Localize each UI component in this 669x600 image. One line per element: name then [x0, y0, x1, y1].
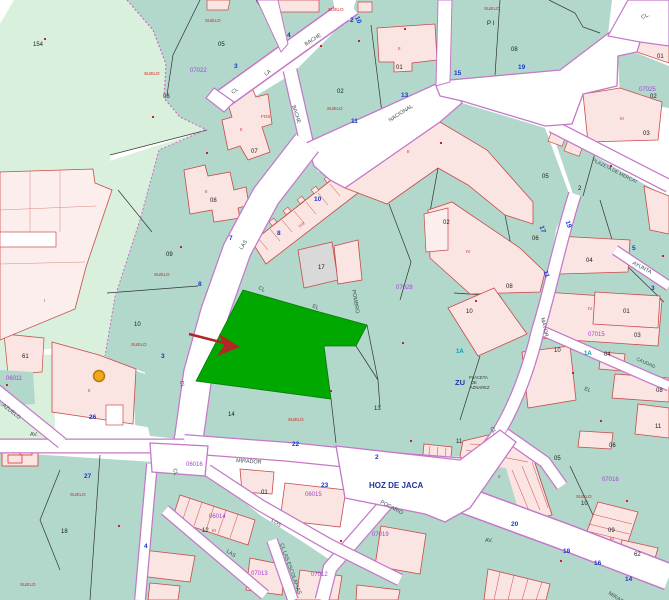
svg-text:FOS: FOS — [261, 114, 270, 119]
svg-text:II: II — [88, 388, 91, 393]
svg-text:8: 8 — [198, 281, 202, 288]
svg-text:23: 23 — [321, 482, 329, 489]
svg-text:II: II — [498, 474, 501, 479]
svg-text:13: 13 — [401, 92, 409, 99]
svg-text:SUELO: SUELO — [327, 106, 343, 111]
svg-text:CL: CL — [178, 380, 185, 388]
svg-text:06: 06 — [609, 443, 616, 449]
svg-text:07028: 07028 — [396, 285, 413, 291]
svg-text:61: 61 — [22, 354, 29, 360]
svg-text:11: 11 — [456, 439, 463, 445]
svg-text:01: 01 — [261, 490, 268, 496]
svg-text:III: III — [212, 528, 216, 533]
svg-text:12: 12 — [202, 528, 209, 534]
svg-text:AZNAREZ: AZNAREZ — [470, 385, 490, 390]
svg-text:07019: 07019 — [372, 532, 389, 538]
svg-text:10: 10 — [314, 196, 322, 203]
svg-text:18: 18 — [61, 529, 68, 535]
svg-text:SUELO: SUELO — [131, 342, 147, 347]
svg-text:05: 05 — [554, 456, 561, 462]
svg-text:09: 09 — [166, 252, 173, 258]
svg-text:13: 13 — [374, 406, 381, 412]
svg-text:SUELO: SUELO — [20, 582, 36, 587]
svg-text:3: 3 — [234, 63, 238, 70]
svg-text:10: 10 — [554, 348, 561, 354]
svg-text:07012: 07012 — [311, 572, 328, 578]
svg-text:10: 10 — [466, 309, 473, 315]
svg-text:02: 02 — [337, 89, 344, 95]
svg-text:AV.: AV. — [30, 432, 38, 438]
svg-text:08: 08 — [210, 198, 217, 204]
svg-text:05: 05 — [542, 174, 549, 180]
svg-text:8: 8 — [277, 230, 281, 237]
svg-text:I: I — [44, 298, 45, 303]
svg-text:06014: 06014 — [209, 514, 226, 520]
svg-text:11: 11 — [351, 118, 358, 125]
svg-text:06011: 06011 — [6, 376, 23, 382]
svg-text:03: 03 — [634, 333, 641, 339]
svg-text:SUELO: SUELO — [484, 6, 500, 11]
svg-text:07013: 07013 — [251, 571, 268, 577]
svg-text:SUELO: SUELO — [154, 272, 170, 277]
svg-text:SUELO: SUELO — [328, 7, 344, 12]
svg-text:7: 7 — [229, 235, 233, 242]
svg-text:II: II — [240, 127, 243, 132]
svg-text:10: 10 — [581, 501, 588, 507]
svg-text:SUELO: SUELO — [70, 492, 86, 497]
svg-text:11: 11 — [655, 424, 662, 430]
svg-text:15: 15 — [454, 70, 462, 77]
svg-text:14: 14 — [625, 576, 633, 583]
svg-text:27: 27 — [84, 473, 92, 480]
svg-text:01: 01 — [657, 54, 664, 60]
svg-text:III: III — [610, 536, 614, 541]
svg-text:20: 20 — [511, 521, 519, 528]
svg-text:SUELO: SUELO — [205, 18, 221, 23]
svg-text:08: 08 — [506, 284, 513, 290]
svg-text:06015: 06015 — [305, 492, 322, 498]
svg-text:07016: 07016 — [602, 477, 619, 483]
svg-text:18: 18 — [563, 548, 571, 555]
svg-text:3: 3 — [651, 285, 655, 292]
svg-text:03: 03 — [643, 131, 650, 137]
svg-text:01: 01 — [623, 309, 630, 315]
svg-text:08: 08 — [656, 388, 663, 394]
svg-text:07: 07 — [251, 149, 258, 155]
svg-text:06: 06 — [532, 236, 539, 242]
svg-text:04: 04 — [586, 258, 593, 264]
svg-text:II: II — [205, 189, 208, 194]
svg-text:II: II — [407, 149, 410, 154]
svg-text:26: 26 — [89, 414, 97, 421]
svg-text:SUELO: SUELO — [288, 417, 304, 422]
svg-text:4: 4 — [144, 543, 148, 550]
svg-text:08: 08 — [511, 47, 518, 53]
svg-text:19: 19 — [518, 64, 526, 71]
svg-text:SUELO: SUELO — [576, 494, 592, 499]
svg-text:02: 02 — [443, 220, 450, 226]
svg-text:22: 22 — [292, 441, 300, 448]
svg-text:1A: 1A — [456, 349, 464, 355]
svg-text:P I: P I — [487, 21, 495, 27]
svg-text:01: 01 — [396, 65, 403, 71]
svg-text:1A: 1A — [584, 351, 592, 357]
svg-text:62: 62 — [634, 552, 641, 558]
svg-text:154: 154 — [33, 42, 44, 48]
svg-text:06016: 06016 — [186, 462, 203, 468]
svg-text:14: 14 — [228, 412, 235, 418]
svg-text:04: 04 — [604, 352, 611, 358]
svg-text:5: 5 — [632, 245, 636, 252]
svg-text:ZU: ZU — [455, 378, 465, 387]
svg-text:16: 16 — [594, 560, 602, 567]
svg-text:05: 05 — [218, 42, 225, 48]
svg-text:02: 02 — [650, 94, 657, 100]
svg-text:HOZ DE JACA: HOZ DE JACA — [369, 481, 423, 490]
svg-text:07025: 07025 — [639, 87, 656, 93]
svg-text:II: II — [398, 46, 401, 51]
svg-text:09: 09 — [608, 528, 615, 534]
svg-text:4: 4 — [287, 32, 291, 39]
svg-text:SUELO: SUELO — [144, 71, 160, 76]
svg-text:07015: 07015 — [588, 332, 605, 338]
svg-text:3: 3 — [161, 353, 165, 360]
svg-text:2: 2 — [375, 454, 379, 461]
svg-text:III: III — [620, 116, 624, 121]
svg-text:10: 10 — [134, 322, 141, 328]
svg-text:07022: 07022 — [190, 68, 207, 74]
svg-text:AV.: AV. — [485, 538, 493, 544]
svg-text:17: 17 — [318, 265, 325, 271]
